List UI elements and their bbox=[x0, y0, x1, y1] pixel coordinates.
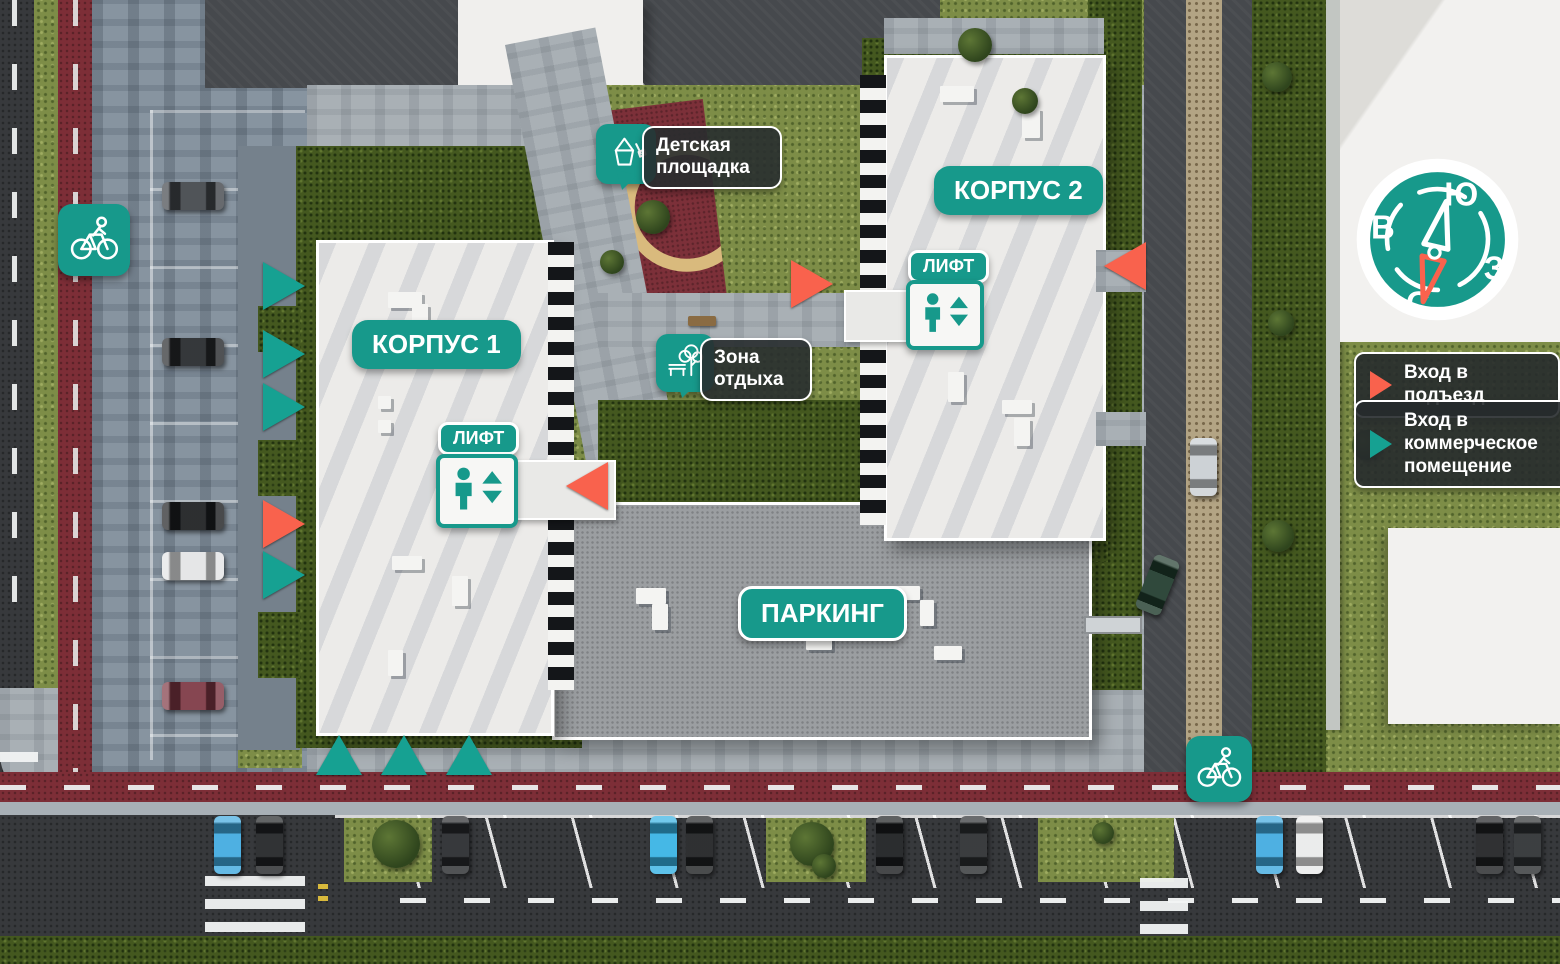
bench bbox=[688, 316, 716, 326]
parking-garage-label[interactable]: ПАРКИНГ bbox=[738, 586, 907, 641]
road-marking-yellow bbox=[318, 884, 328, 889]
elevator-corridor-2 bbox=[844, 290, 914, 342]
tactile-paving-strip bbox=[1186, 0, 1222, 778]
elevator2-label[interactable]: ЛИФТ bbox=[908, 250, 989, 283]
car bbox=[442, 816, 469, 874]
elevator-icon bbox=[918, 290, 972, 341]
car bbox=[162, 502, 224, 530]
bicycle-icon bbox=[67, 211, 121, 270]
rooftop-unit bbox=[392, 556, 422, 570]
east-connector-walk bbox=[1096, 412, 1146, 446]
site-plan-map: КОРПУС 1 КОРПУС 2 ПАРКИНГ ЛИФТ ЛИФТ bbox=[0, 0, 1560, 964]
commercial-entrance-marker[interactable] bbox=[263, 262, 305, 310]
rest-zone-label[interactable]: Зона отдыха bbox=[700, 338, 812, 401]
rooftop-unit bbox=[920, 600, 934, 626]
street-centerline bbox=[400, 898, 1560, 903]
building1-label-text: КОРПУС 1 bbox=[372, 329, 501, 360]
rest-zone-label-text: Зона отдыха bbox=[714, 347, 784, 390]
road-marking-yellow bbox=[318, 896, 328, 901]
bush bbox=[812, 854, 836, 878]
commercial-entrance-marker[interactable] bbox=[446, 735, 492, 775]
compass-dial-icon: Ю В З С bbox=[1350, 152, 1525, 327]
rooftop-unit bbox=[636, 588, 666, 604]
bike-lane-vertical-dashes bbox=[73, 0, 78, 774]
path-above-building2 bbox=[884, 18, 1104, 54]
tree-line-south bbox=[0, 936, 1560, 964]
car bbox=[1296, 816, 1323, 874]
bicycle-icon bbox=[1194, 742, 1244, 797]
boundary-wall bbox=[1326, 0, 1340, 730]
residential-entrance-marker[interactable] bbox=[791, 260, 833, 308]
car bbox=[162, 182, 224, 210]
rooftop-unit bbox=[452, 576, 468, 606]
rooftop-unit bbox=[1002, 400, 1032, 414]
hedge-patch bbox=[258, 440, 300, 496]
rooftop-unit bbox=[1014, 418, 1030, 446]
hedge-patch bbox=[258, 612, 300, 678]
rooftop-unit bbox=[378, 396, 391, 409]
rooftop-unit bbox=[388, 650, 403, 676]
crosswalk-west bbox=[205, 876, 305, 940]
tree bbox=[372, 820, 420, 868]
elevator-icon bbox=[448, 464, 506, 519]
building2-label-text: КОРПУС 2 bbox=[954, 175, 1083, 206]
compass-left-letter: В bbox=[1371, 208, 1395, 245]
car bbox=[214, 816, 241, 874]
car bbox=[960, 816, 987, 874]
red-entrance-triangle-icon bbox=[1370, 371, 1392, 399]
commercial-entrance-marker[interactable] bbox=[263, 330, 305, 378]
neighbor-building-2 bbox=[1388, 528, 1560, 724]
left-street-centerline bbox=[12, 0, 17, 640]
rooftop-unit bbox=[652, 604, 668, 630]
car bbox=[162, 552, 224, 580]
car bbox=[1514, 816, 1541, 874]
elevator1-sign[interactable] bbox=[436, 454, 518, 528]
bush bbox=[1268, 310, 1294, 336]
car bbox=[686, 816, 713, 874]
compass-right-letter: З bbox=[1484, 250, 1505, 287]
playground-label[interactable]: Детская площадка bbox=[642, 126, 782, 189]
teal-entrance-triangle-icon bbox=[1370, 430, 1392, 458]
commercial-entrance-marker[interactable] bbox=[316, 735, 362, 775]
car bbox=[162, 338, 224, 366]
elevator2-label-text: ЛИФТ bbox=[923, 256, 974, 277]
compass: Ю В З С bbox=[1350, 152, 1525, 327]
building2-label[interactable]: КОРПУС 2 bbox=[934, 166, 1103, 215]
car bbox=[876, 816, 903, 874]
elevator1-label[interactable]: ЛИФТ bbox=[438, 422, 519, 455]
building1-label[interactable]: КОРПУС 1 bbox=[352, 320, 521, 369]
bench bbox=[1084, 616, 1142, 634]
elevator1-label-text: ЛИФТ bbox=[453, 428, 504, 449]
sidewalk-band bbox=[0, 802, 1560, 815]
car bbox=[1256, 816, 1283, 874]
bush bbox=[1012, 88, 1038, 114]
residential-entrance-marker[interactable] bbox=[263, 500, 305, 548]
rooftop-unit bbox=[948, 372, 964, 402]
commercial-entrance-marker[interactable] bbox=[263, 551, 305, 599]
commercial-entrance-marker[interactable] bbox=[263, 383, 305, 431]
bush bbox=[1262, 520, 1294, 552]
rooftop-unit bbox=[378, 420, 391, 433]
parking-label-text: ПАРКИНГ bbox=[761, 598, 884, 629]
rooftop-unit bbox=[940, 86, 974, 102]
car bbox=[256, 816, 283, 874]
car bbox=[1476, 816, 1503, 874]
bike-path-badge[interactable] bbox=[58, 204, 130, 276]
playground-label-text: Детская площадка bbox=[656, 135, 750, 178]
car bbox=[650, 816, 677, 874]
bush bbox=[636, 200, 670, 234]
car bbox=[1190, 438, 1217, 496]
bush bbox=[600, 250, 624, 274]
compass-top-letter: Ю bbox=[1444, 176, 1478, 213]
bike-path-badge[interactable] bbox=[1186, 736, 1252, 802]
bush bbox=[1092, 822, 1114, 844]
hedge-strip-far-east bbox=[1252, 0, 1326, 775]
street-parking-stalls bbox=[335, 815, 1560, 888]
residential-entrance-marker[interactable] bbox=[1104, 242, 1146, 290]
bush bbox=[958, 28, 992, 62]
crosswalk-east bbox=[1140, 878, 1188, 940]
bush bbox=[1262, 62, 1292, 92]
rooftop-unit bbox=[934, 646, 962, 660]
legend-item-commercial: Вход в коммерческое помещение bbox=[1354, 400, 1560, 488]
elevator2-sign[interactable] bbox=[906, 280, 984, 350]
commercial-entrance-marker[interactable] bbox=[381, 735, 427, 775]
car bbox=[162, 682, 224, 710]
bike-lane-dashes bbox=[0, 785, 1560, 790]
residential-entrance-marker[interactable] bbox=[566, 462, 608, 510]
legend-commercial-text: Вход в коммерческое помещение bbox=[1404, 410, 1560, 478]
